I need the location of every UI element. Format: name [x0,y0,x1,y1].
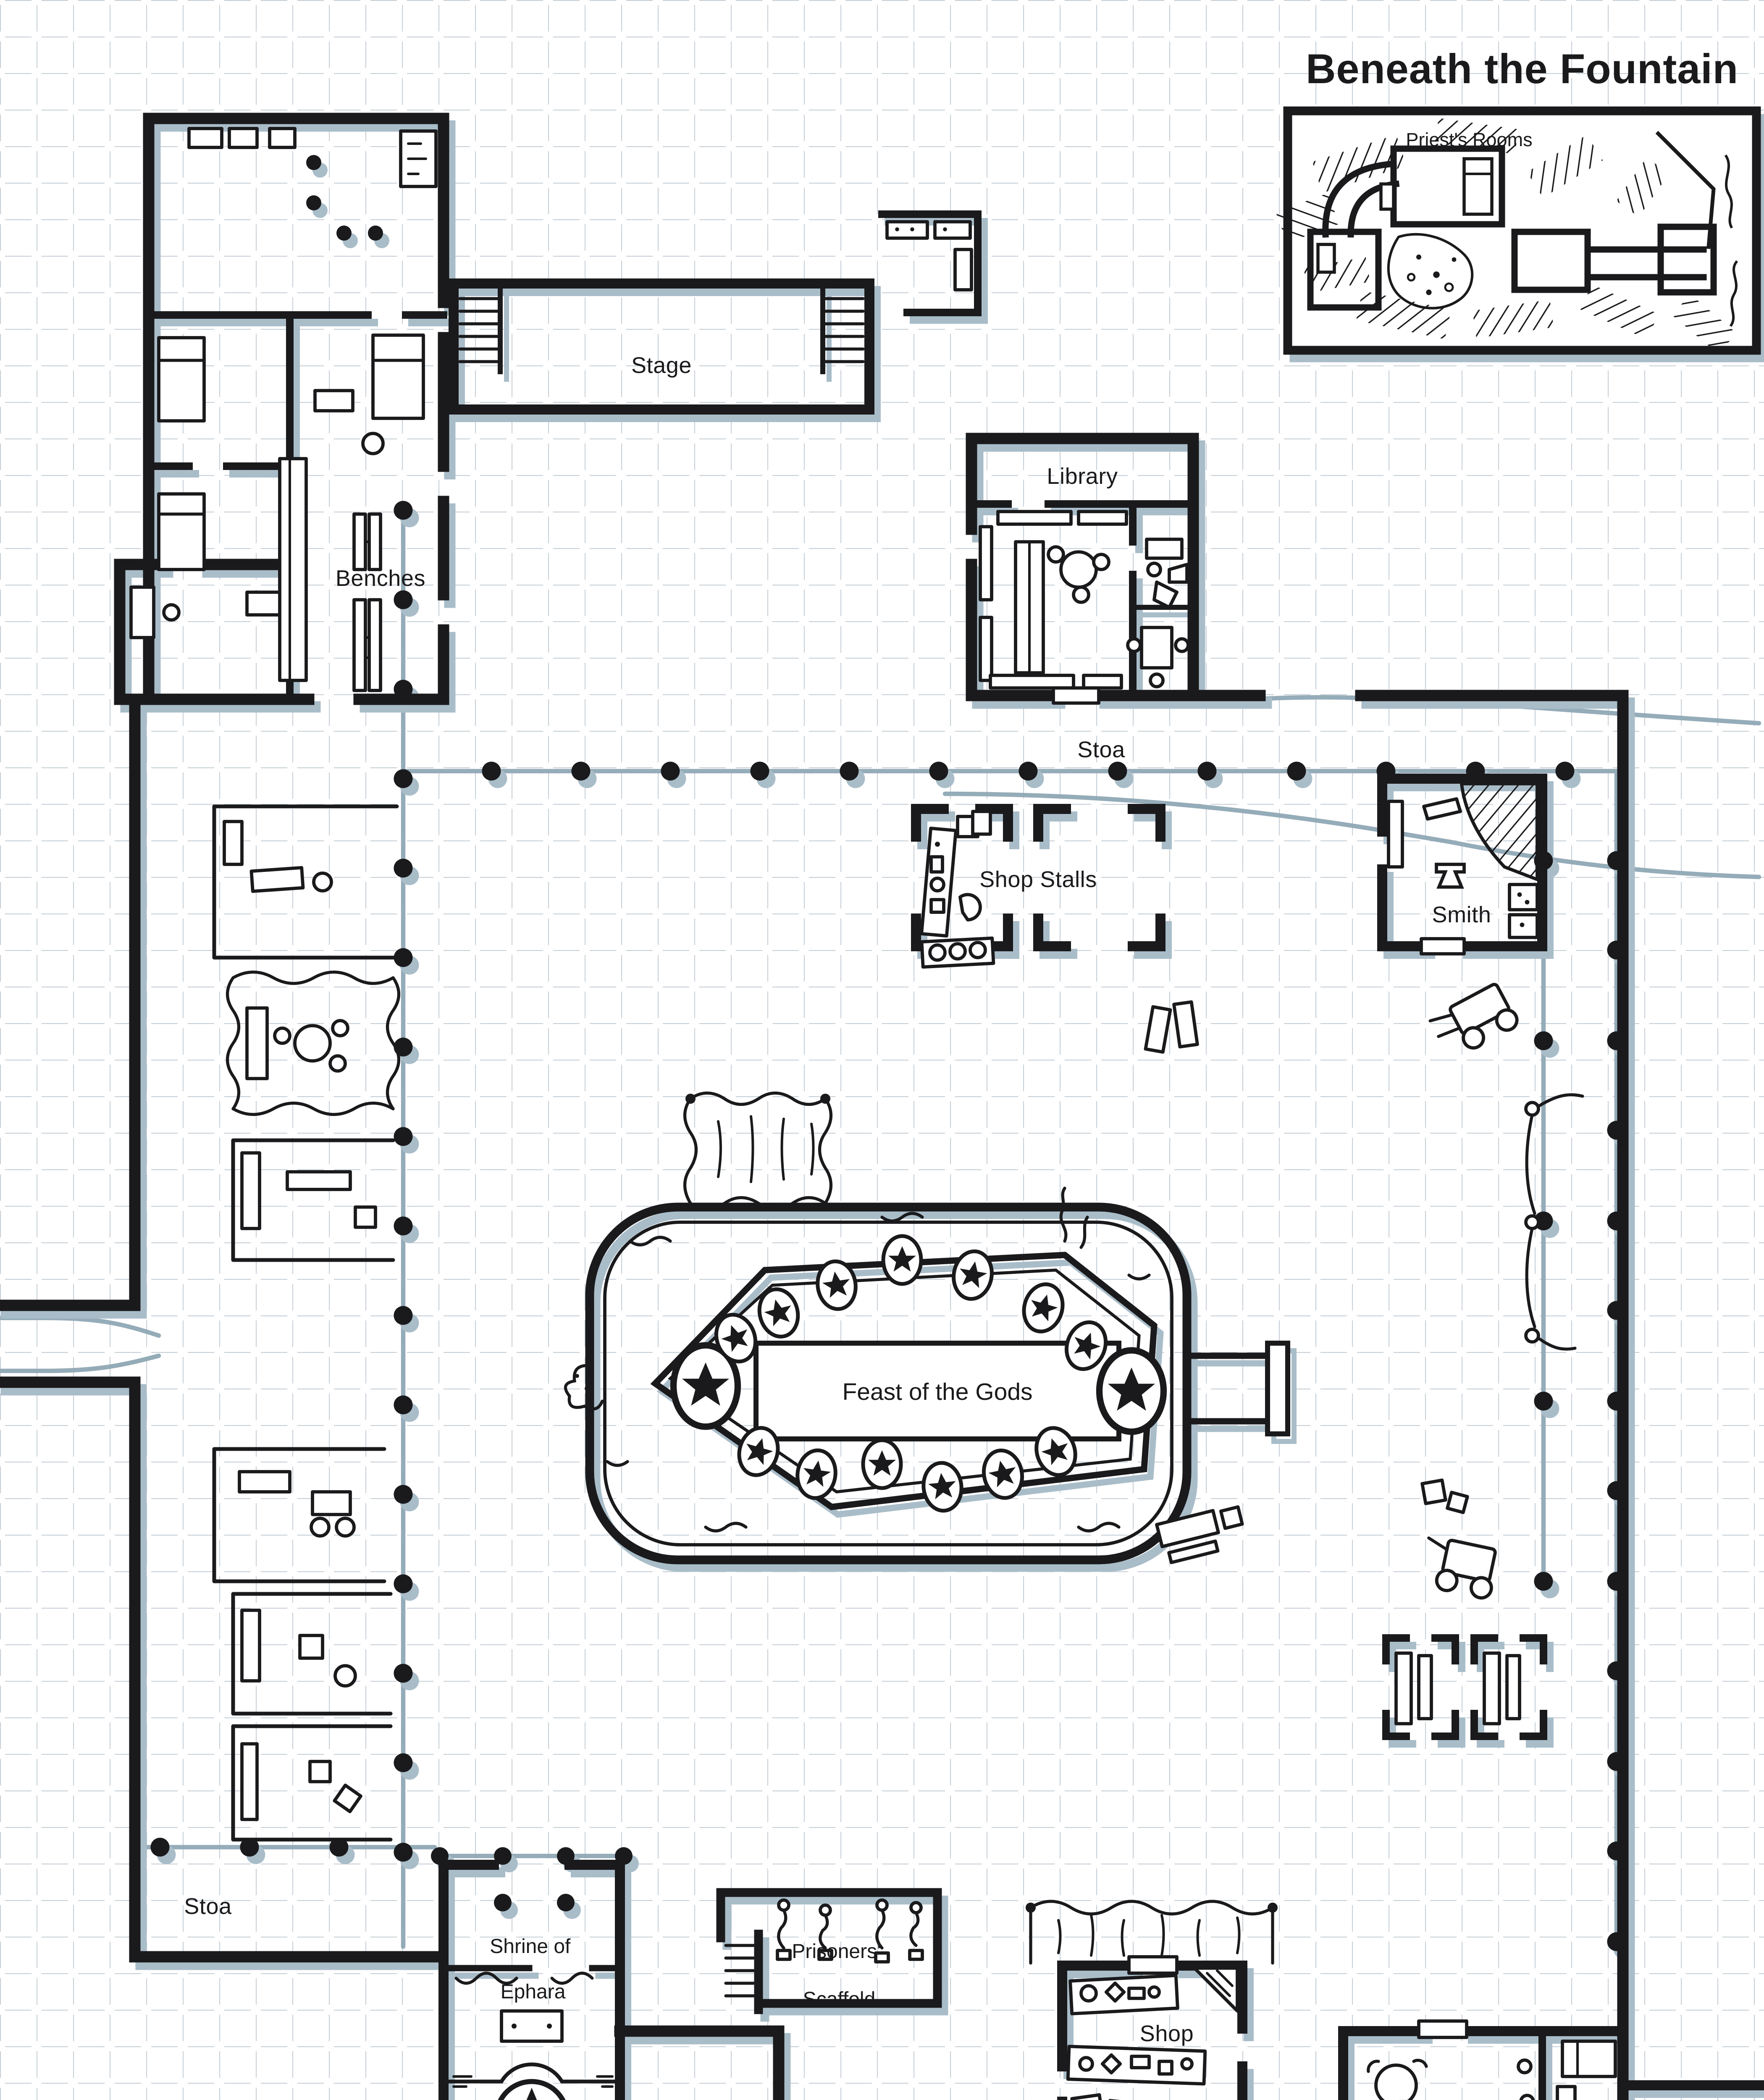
smith-label: Smith [1432,902,1491,927]
library-label: Library [1047,464,1118,489]
stage-label: Stage [631,353,692,378]
stoa-north-label: Stoa [1077,737,1125,762]
inset-title: Beneath the Fountain [1306,45,1738,92]
altar-icon [501,2011,562,2041]
prisoners-line1: Prisoners' [792,1940,881,1963]
shrine-line1: Shrine of [490,1935,571,1958]
tavern-label: Tavern [1399,2095,1469,2100]
door-icon [1421,939,1464,954]
door-icon [1053,688,1099,703]
town-square-map: Beneath the Fountain Priest's Rooms Stag… [0,0,1764,2100]
shop-label: Shop [1140,2021,1194,2046]
shop-stalls-label: Shop Stalls [979,867,1097,892]
door-icon [1129,1957,1177,1973]
prisoners-line2: Scaffold [803,1988,876,2011]
inset-room-label: Priest's Rooms [1406,129,1532,150]
feast-label: Feast of the Gods [842,1378,1032,1405]
shrine-line2: Ephara [501,1981,566,2003]
stoa-southwest-label: Stoa [184,1894,232,1919]
benches-label: Benches [336,566,425,591]
door-icon [1419,2021,1467,2037]
